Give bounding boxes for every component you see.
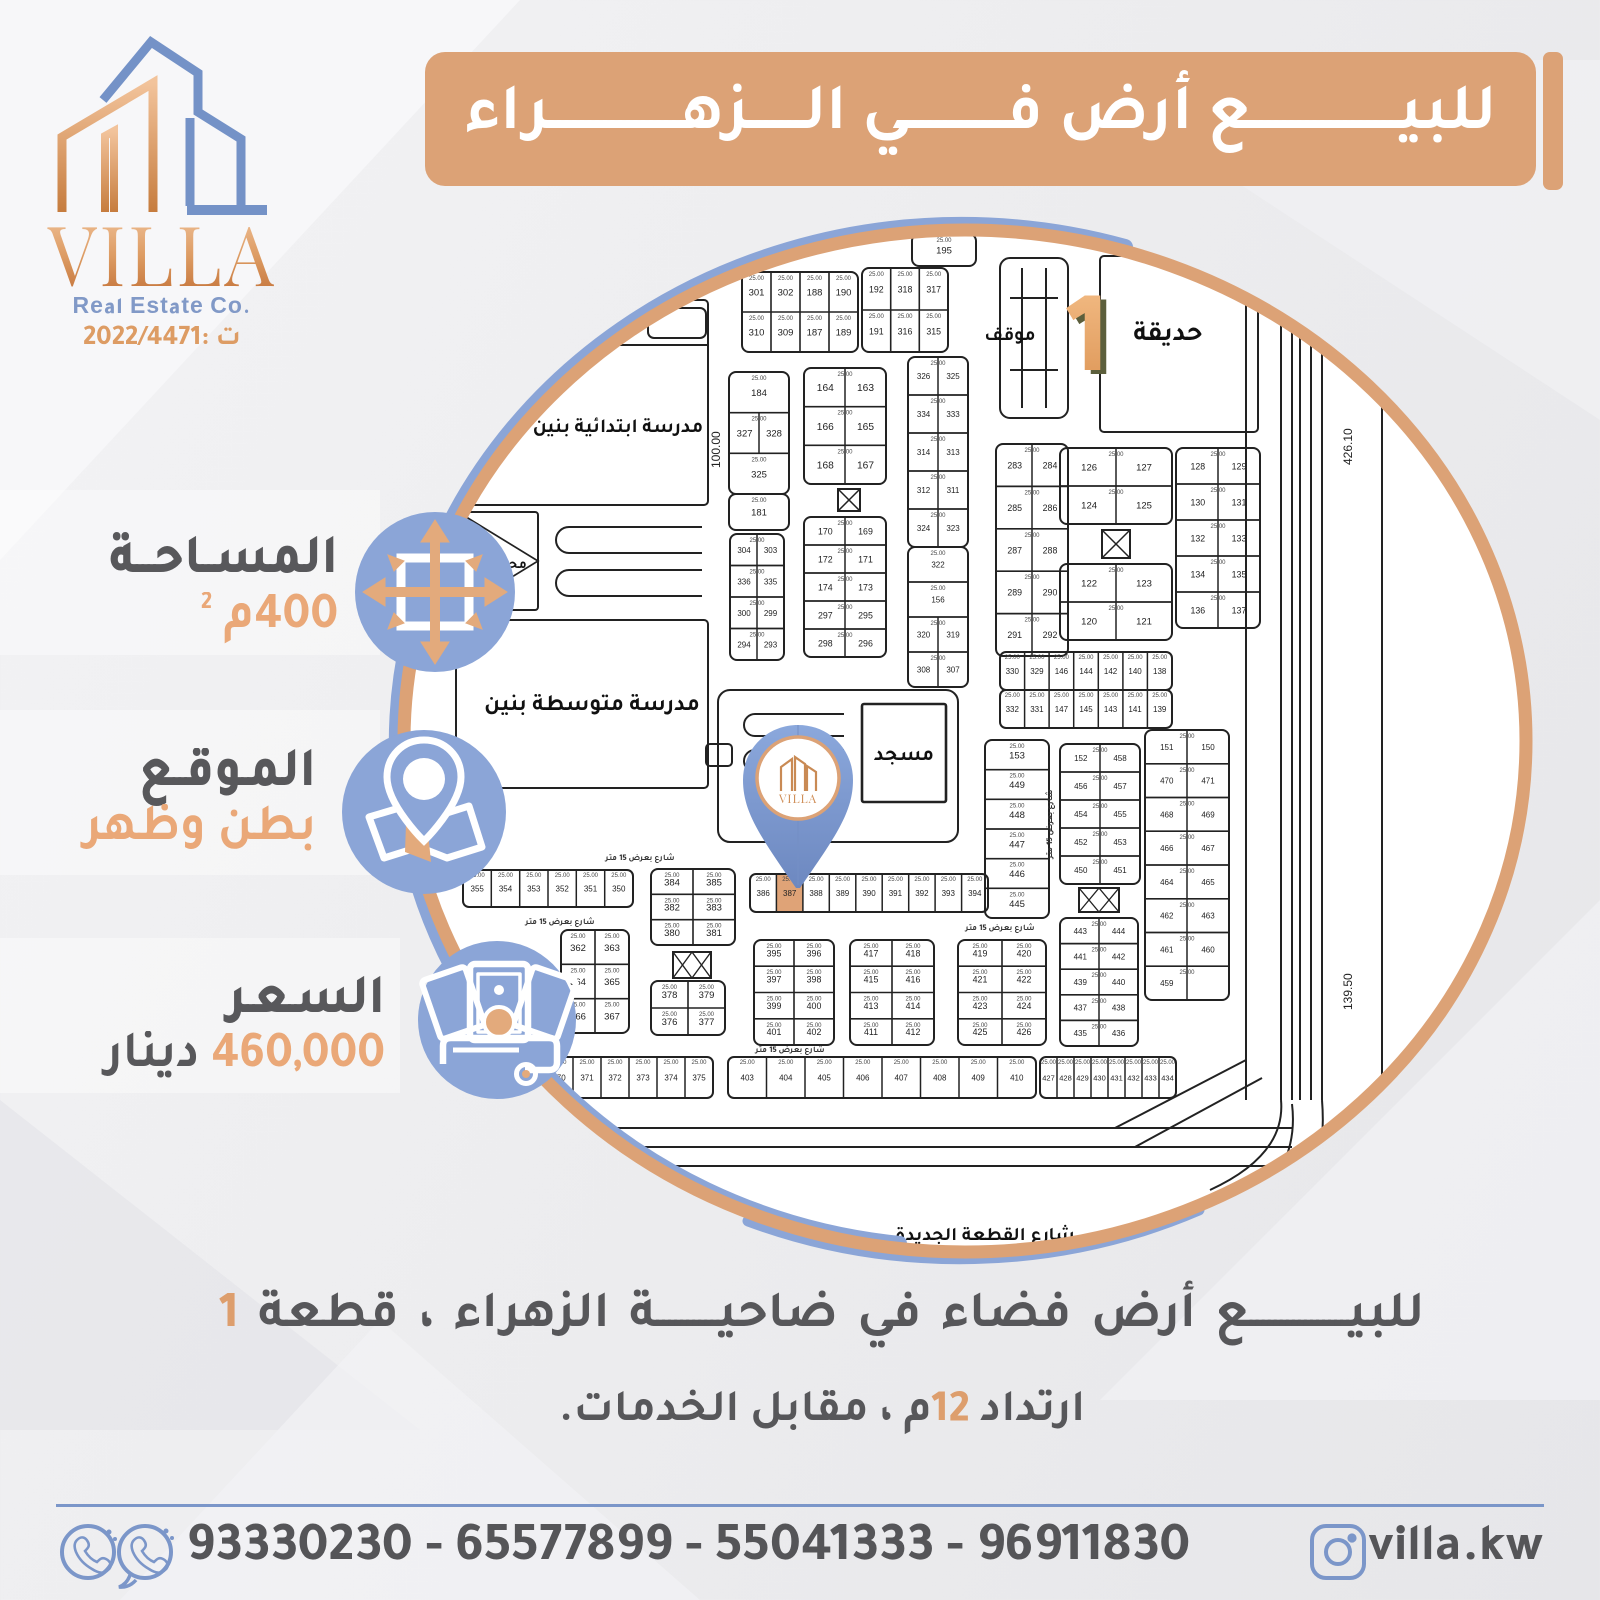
svg-text:296: 296 [858,638,873,648]
svg-text:25.00: 25.00 [869,314,885,320]
svg-text:413: 413 [864,1001,879,1011]
svg-text:463: 463 [1201,912,1215,921]
svg-text:مسجد: مسجد [874,747,935,768]
svg-text:25.00: 25.00 [570,934,586,940]
svg-text:25.00: 25.00 [751,376,767,382]
svg-text:285: 285 [1007,503,1022,513]
svg-text:440: 440 [1112,978,1126,987]
svg-text:127: 127 [1136,463,1152,474]
svg-text:25.00: 25.00 [756,877,772,883]
svg-text:25.00: 25.00 [740,1060,756,1066]
svg-text:303: 303 [764,546,778,555]
svg-text:171: 171 [858,554,873,564]
svg-text:399: 399 [767,1001,782,1011]
svg-text:151: 151 [1160,743,1174,752]
svg-text:398: 398 [807,975,822,985]
svg-text:25.00: 25.00 [1009,803,1025,809]
svg-text:441: 441 [1074,952,1088,961]
svg-text:434: 434 [1161,1073,1174,1082]
svg-text:394: 394 [968,889,982,898]
svg-text:25.00: 25.00 [1041,1060,1057,1066]
svg-text:363: 363 [604,943,620,954]
svg-text:133: 133 [1232,533,1247,543]
svg-text:25.00: 25.00 [930,551,946,557]
svg-text:315: 315 [926,326,941,336]
svg-text:439: 439 [1074,978,1088,987]
svg-text:25.00: 25.00 [583,873,599,879]
svg-text:25.00: 25.00 [1160,1060,1176,1066]
svg-text:451: 451 [1113,866,1127,875]
svg-text:307: 307 [946,666,960,675]
svg-text:422: 422 [1017,975,1032,985]
svg-text:380: 380 [664,928,680,939]
svg-text:195: 195 [936,246,952,257]
svg-text:326: 326 [917,372,931,381]
svg-text:309: 309 [778,328,794,339]
svg-text:25.00: 25.00 [570,968,586,974]
svg-text:293: 293 [764,640,778,649]
svg-text:373: 373 [636,1074,650,1083]
svg-text:459: 459 [1160,979,1174,988]
svg-text:123: 123 [1136,579,1152,590]
svg-text:444: 444 [1112,927,1126,936]
svg-text:25.00: 25.00 [1009,863,1025,869]
svg-text:25.00: 25.00 [1143,1060,1159,1066]
svg-text:25.00: 25.00 [498,873,514,879]
svg-text:25.00: 25.00 [888,877,904,883]
svg-text:147: 147 [1055,705,1069,714]
svg-text:333: 333 [946,410,960,419]
svg-text:120: 120 [1081,617,1097,628]
svg-text:426.10: 426.10 [1341,428,1355,465]
svg-text:25.00: 25.00 [926,272,942,278]
svg-text:192: 192 [869,284,884,294]
svg-text:335: 335 [764,577,778,586]
svg-text:283: 283 [1007,461,1022,471]
svg-text:VILLA: VILLA [778,791,817,807]
svg-text:446: 446 [1009,869,1025,880]
svg-text:25.00: 25.00 [778,1060,794,1066]
svg-text:377: 377 [699,1017,715,1028]
svg-text:169: 169 [858,526,873,536]
svg-text:189: 189 [836,328,852,339]
svg-text:163: 163 [857,383,874,394]
svg-text:139: 139 [1153,705,1167,714]
svg-text:174: 174 [818,582,833,592]
svg-text:25.00: 25.00 [855,1060,871,1066]
svg-text:331: 331 [1030,705,1044,714]
svg-text:308: 308 [917,666,931,675]
svg-text:141: 141 [1128,705,1142,714]
svg-text:352: 352 [556,885,570,894]
svg-text:425: 425 [973,1027,988,1037]
svg-text:25.00: 25.00 [897,272,913,278]
svg-text:414: 414 [906,1001,921,1011]
svg-text:25.00: 25.00 [1075,1060,1091,1066]
svg-text:284: 284 [1043,461,1058,471]
svg-text:332: 332 [1006,705,1020,714]
svg-text:حديقة: حديقة [1133,321,1203,350]
svg-text:125: 125 [1136,501,1152,512]
svg-text:25.00: 25.00 [555,873,571,879]
svg-text:165: 165 [857,422,874,433]
svg-text:25.00: 25.00 [1009,774,1025,780]
svg-text:385: 385 [706,877,722,888]
svg-text:354: 354 [499,885,513,894]
svg-text:366: 366 [570,1011,586,1022]
svg-text:25.00: 25.00 [607,1060,623,1066]
svg-text:25.00: 25.00 [749,316,765,322]
svg-text:25.00: 25.00 [604,968,620,974]
svg-text:25.00: 25.00 [1029,693,1045,699]
svg-text:371: 371 [580,1074,594,1083]
svg-text:290: 290 [1043,588,1058,598]
svg-text:25.00: 25.00 [579,1060,595,1066]
svg-text:25.00: 25.00 [861,877,877,883]
svg-text:334: 334 [917,410,931,419]
svg-text:320: 320 [917,631,931,640]
svg-text:437: 437 [1074,1004,1088,1013]
svg-text:25.00: 25.00 [778,316,794,322]
svg-text:25.00: 25.00 [1152,655,1168,661]
svg-text:25.00: 25.00 [751,498,767,504]
svg-text:25.00: 25.00 [1058,1060,1074,1066]
svg-text:128: 128 [1190,461,1205,471]
svg-text:25.00: 25.00 [807,316,823,322]
svg-text:25.00: 25.00 [1092,1060,1108,1066]
svg-text:460: 460 [1201,945,1215,954]
svg-text:455: 455 [1113,810,1127,819]
svg-text:417: 417 [864,949,879,959]
svg-text:136: 136 [1190,605,1205,615]
svg-text:25.00: 25.00 [635,1060,651,1066]
svg-text:137: 137 [1232,605,1247,615]
svg-text:132: 132 [1190,533,1205,543]
svg-text:145: 145 [1079,705,1093,714]
svg-text:295: 295 [858,610,873,620]
svg-text:135: 135 [1232,569,1247,579]
svg-text:374: 374 [664,1074,678,1083]
svg-text:442: 442 [1112,952,1126,961]
svg-text:402: 402 [807,1027,822,1037]
svg-text:367: 367 [604,1011,620,1022]
svg-text:173: 173 [858,582,873,592]
svg-text:362: 362 [570,943,586,954]
svg-text:435: 435 [1074,1029,1088,1038]
svg-text:304: 304 [737,546,751,555]
svg-text:351: 351 [584,885,598,894]
svg-text:418: 418 [906,949,921,959]
svg-text:25.00: 25.00 [749,276,765,282]
svg-text:25.00: 25.00 [809,877,825,883]
svg-text:25.00: 25.00 [1009,892,1025,898]
svg-text:471: 471 [1201,777,1215,786]
svg-text:390: 390 [862,889,876,898]
svg-text:393: 393 [942,889,956,898]
svg-text:25.00: 25.00 [551,1060,567,1066]
svg-text:372: 372 [608,1074,622,1083]
svg-text:170: 170 [818,526,833,536]
svg-text:25.00: 25.00 [1054,693,1070,699]
svg-text:469: 469 [1201,810,1215,819]
svg-text:25.00: 25.00 [836,316,852,322]
svg-text:313: 313 [946,448,960,457]
svg-text:25.00: 25.00 [894,1060,910,1066]
svg-text:1: 1 [1066,295,1110,413]
svg-text:190: 190 [836,288,852,299]
svg-text:25.00: 25.00 [1128,655,1144,661]
svg-text:457: 457 [1113,782,1127,791]
svg-text:404: 404 [779,1074,793,1083]
svg-text:450: 450 [1074,866,1088,875]
svg-text:387: 387 [783,889,797,898]
svg-text:438: 438 [1112,1004,1126,1013]
svg-text:317: 317 [926,284,941,294]
svg-text:424: 424 [1017,1001,1032,1011]
svg-text:25.00: 25.00 [611,873,627,879]
svg-text:401: 401 [767,1027,782,1037]
svg-text:336: 336 [737,577,751,586]
svg-text:421: 421 [973,975,988,985]
svg-text:299: 299 [764,609,778,618]
svg-text:408: 408 [933,1074,947,1083]
svg-text:25.00: 25.00 [1009,744,1025,750]
svg-text:468: 468 [1160,810,1174,819]
svg-text:311: 311 [947,486,960,495]
svg-text:131: 131 [1232,497,1247,507]
svg-text:436: 436 [1112,1029,1126,1038]
svg-text:329: 329 [1030,667,1044,676]
svg-text:365: 365 [604,977,620,988]
svg-text:25.00: 25.00 [926,314,942,320]
svg-text:426: 426 [1017,1027,1032,1037]
svg-text:396: 396 [807,949,822,959]
svg-text:25.00: 25.00 [663,1060,679,1066]
svg-text:397: 397 [767,975,782,985]
svg-text:287: 287 [1007,545,1022,555]
svg-text:458: 458 [1113,754,1127,763]
svg-text:395: 395 [767,949,782,959]
svg-text:379: 379 [699,990,715,1001]
svg-text:448: 448 [1009,810,1025,821]
svg-text:466: 466 [1160,844,1174,853]
svg-text:412: 412 [906,1027,921,1037]
svg-text:25.00: 25.00 [1152,693,1168,699]
svg-text:156: 156 [931,596,945,605]
svg-text:124: 124 [1081,501,1097,512]
svg-text:25.00: 25.00 [835,877,851,883]
svg-text:429: 429 [1076,1073,1089,1082]
svg-text:25.00: 25.00 [967,877,983,883]
svg-text:25.00: 25.00 [897,314,913,320]
svg-text:140: 140 [1128,667,1142,676]
svg-text:130: 130 [1190,497,1205,507]
svg-text:25.00: 25.00 [1109,1060,1125,1066]
svg-text:312: 312 [917,486,931,495]
svg-text:328: 328 [766,429,782,440]
svg-text:300: 300 [737,609,751,618]
svg-text:25.00: 25.00 [1078,655,1094,661]
svg-text:382: 382 [664,903,680,914]
svg-text:445: 445 [1009,899,1025,910]
svg-text:مدرسة ابتدائية بنين: مدرسة ابتدائية بنين [533,417,704,440]
svg-text:428: 428 [1059,1073,1072,1082]
svg-text:181: 181 [751,508,767,519]
svg-text:433: 433 [1144,1073,1157,1082]
svg-text:25.00: 25.00 [936,238,952,244]
svg-text:430: 430 [1093,1073,1106,1082]
svg-text:407: 407 [895,1074,909,1083]
svg-text:153: 153 [1009,750,1025,761]
svg-text:330: 330 [1006,667,1020,676]
svg-text:465: 465 [1201,878,1215,887]
svg-text:310: 310 [749,328,765,339]
svg-text:25.00: 25.00 [914,877,930,883]
svg-text:146: 146 [1055,667,1069,676]
svg-text:25.00: 25.00 [1103,693,1119,699]
svg-text:324: 324 [917,524,931,533]
svg-text:378: 378 [662,990,678,1001]
svg-text:143: 143 [1104,705,1118,714]
svg-text:286: 286 [1043,503,1058,513]
svg-text:323: 323 [946,524,960,533]
svg-text:376: 376 [662,1017,678,1028]
svg-text:406: 406 [856,1074,870,1083]
svg-text:384: 384 [664,877,680,888]
svg-text:25.00: 25.00 [1078,693,1094,699]
svg-text:411: 411 [864,1027,878,1037]
svg-text:25.00: 25.00 [1029,655,1045,661]
svg-text:391: 391 [889,889,903,898]
svg-text:166: 166 [817,422,834,433]
svg-text:316: 316 [898,326,913,336]
svg-text:موقف: موقف [984,327,1035,347]
svg-text:134: 134 [1190,569,1205,579]
svg-text:423: 423 [973,1001,988,1011]
svg-text:364: 364 [570,977,586,988]
svg-text:184: 184 [751,388,767,399]
svg-text:409: 409 [972,1074,986,1083]
svg-text:25.00: 25.00 [1128,693,1144,699]
svg-text:443: 443 [1074,927,1088,936]
svg-text:403: 403 [741,1074,755,1083]
svg-text:467: 467 [1201,844,1215,853]
svg-text:25.00: 25.00 [1005,655,1021,661]
svg-text:319: 319 [946,631,960,640]
svg-text:150: 150 [1201,743,1215,752]
svg-text:381: 381 [706,928,722,939]
svg-text:121: 121 [1136,617,1152,628]
svg-text:302: 302 [778,288,794,299]
svg-text:172: 172 [818,554,833,564]
svg-text:138: 138 [1153,667,1167,676]
svg-text:392: 392 [915,889,929,898]
svg-text:419: 419 [973,949,988,959]
svg-text:318: 318 [898,284,913,294]
svg-text:25.00: 25.00 [930,586,946,592]
svg-text:415: 415 [864,975,879,985]
svg-text:25.00: 25.00 [1009,833,1025,839]
svg-text:294: 294 [737,640,751,649]
svg-text:431: 431 [1110,1073,1123,1082]
svg-text:416: 416 [906,975,921,985]
svg-text:456: 456 [1074,782,1088,791]
svg-text:126: 126 [1081,463,1097,474]
svg-text:327: 327 [737,429,753,440]
svg-text:25.00: 25.00 [1054,655,1070,661]
svg-text:462: 462 [1160,912,1174,921]
svg-text:25.00: 25.00 [1005,693,1021,699]
svg-text:25.00: 25.00 [932,1060,948,1066]
svg-text:187: 187 [807,328,823,339]
svg-text:427: 427 [1042,1073,1055,1082]
svg-text:25.00: 25.00 [807,276,823,282]
svg-text:25.00: 25.00 [526,873,542,879]
svg-text:25.00: 25.00 [778,276,794,282]
svg-text:454: 454 [1074,810,1088,819]
svg-text:314: 314 [917,448,931,457]
svg-text:288: 288 [1043,545,1058,555]
svg-text:152: 152 [1074,754,1088,763]
svg-text:375: 375 [692,1074,706,1083]
svg-text:291: 291 [1007,630,1022,640]
svg-text:325: 325 [946,372,960,381]
svg-text:167: 167 [857,461,874,472]
svg-text:289: 289 [1007,588,1022,598]
svg-text:144: 144 [1079,667,1093,676]
svg-text:405: 405 [818,1074,832,1083]
svg-text:301: 301 [749,288,765,299]
svg-text:25.00: 25.00 [869,272,885,278]
svg-text:25.00: 25.00 [691,1060,707,1066]
svg-text:25.00: 25.00 [941,877,957,883]
svg-text:122: 122 [1081,579,1097,590]
svg-text:25.00: 25.00 [817,1060,833,1066]
svg-text:353: 353 [527,885,541,894]
svg-text:168: 168 [817,461,834,472]
svg-text:25.00: 25.00 [604,1003,620,1009]
svg-text:447: 447 [1009,839,1025,850]
svg-text:383: 383 [706,903,722,914]
svg-text:164: 164 [817,383,834,394]
svg-text:25.00: 25.00 [604,934,620,940]
svg-text:297: 297 [818,610,833,620]
svg-text:449: 449 [1009,780,1025,791]
svg-text:470: 470 [1160,777,1174,786]
svg-text:325: 325 [751,469,767,480]
svg-text:350: 350 [612,885,626,894]
svg-text:355: 355 [471,885,485,894]
svg-text:188: 188 [807,288,823,299]
svg-text:191: 191 [869,326,884,336]
svg-text:322: 322 [931,561,945,570]
svg-text:453: 453 [1113,838,1127,847]
svg-text:432: 432 [1127,1073,1140,1082]
svg-text:محولة: محولة [489,558,526,573]
svg-text:386: 386 [757,889,771,898]
svg-text:464: 464 [1160,878,1174,887]
svg-text:25.00: 25.00 [836,276,852,282]
svg-text:25.00: 25.00 [1009,1060,1025,1066]
svg-text:420: 420 [1017,949,1032,959]
svg-text:461: 461 [1160,945,1174,954]
svg-text:25.00: 25.00 [1103,655,1119,661]
svg-text:400: 400 [807,1001,822,1011]
svg-text:25.00: 25.00 [470,873,486,879]
svg-text:25.00: 25.00 [570,1003,586,1009]
svg-text:298: 298 [818,638,833,648]
svg-text:25.00: 25.00 [1126,1060,1142,1066]
